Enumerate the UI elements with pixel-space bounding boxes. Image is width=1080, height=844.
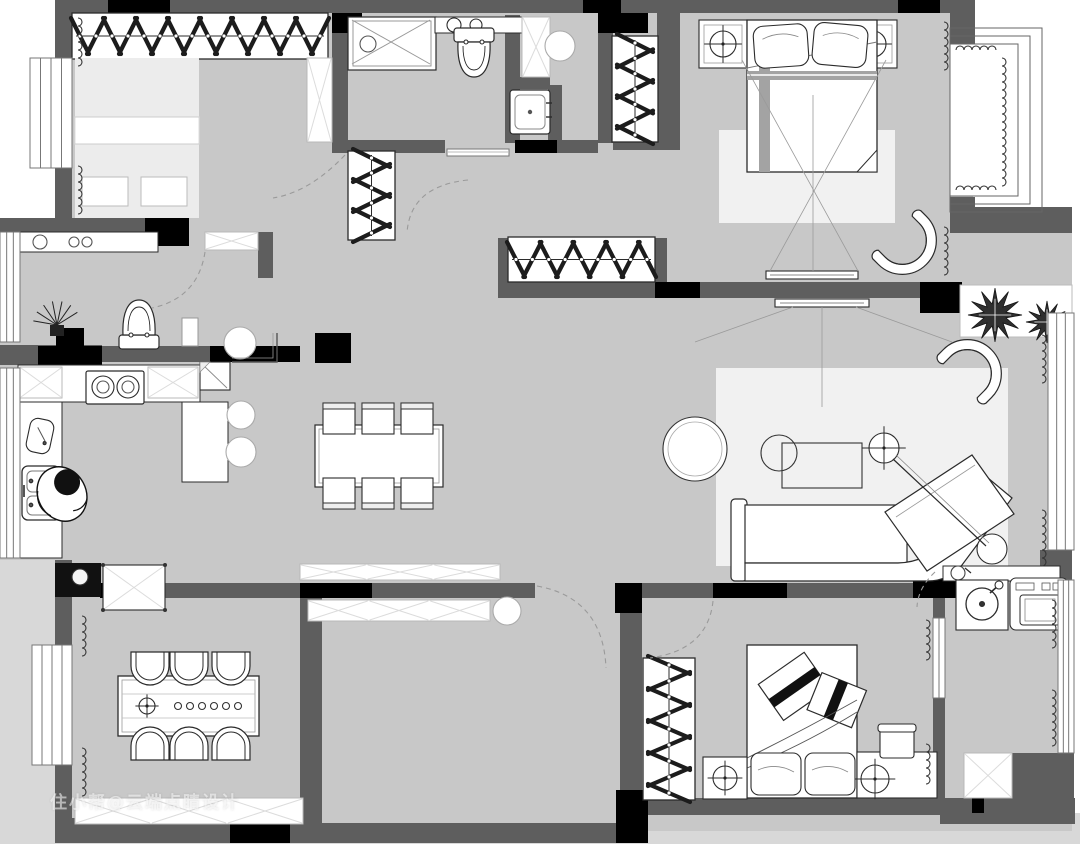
chair-back [362,403,394,409]
table-dot [223,703,230,710]
hook [633,118,636,121]
double-bed [747,20,877,172]
window-frame [0,368,20,558]
plant-pot [50,325,64,336]
window-frame [0,232,20,342]
pouf [224,327,256,359]
wall [372,583,535,598]
bracket [101,608,105,612]
sideboard [308,600,490,621]
hook [142,34,145,37]
chair-back [362,503,394,509]
wall-black [315,333,351,363]
wall [55,0,975,13]
pillow-shape [753,23,810,69]
bracket [163,563,167,567]
hook [547,258,550,261]
knife-dot [43,441,47,445]
dining-chair [212,652,250,685]
pillow-shape [751,753,801,795]
wall-black [613,13,648,33]
hook [126,34,129,37]
hook [596,258,599,261]
hook [370,216,373,219]
storage-cabinet [964,753,1012,798]
nightstand-left [699,20,747,68]
bed [747,645,866,798]
hook [370,201,373,204]
wall-black [713,583,787,598]
wall [0,218,147,232]
pillow [751,753,801,795]
dining-chair [131,652,169,685]
sideboard-hatch [300,564,500,580]
square-chair [401,478,433,509]
chair-back [323,403,355,409]
wall [657,13,680,143]
bracket [163,608,167,612]
wardrobe-hangers [348,149,395,242]
gas-stove [86,371,144,404]
wall [620,613,642,798]
hook [514,258,517,261]
window [0,368,20,558]
hinge [145,333,149,337]
hook [158,34,161,37]
wall [300,598,322,830]
wall-black [898,0,940,13]
window [32,645,72,765]
wall-black [583,0,621,13]
control-panel [1016,583,1034,590]
wall [642,583,713,598]
lamp-dot [721,42,724,45]
pillow [753,23,810,69]
wall [787,583,913,598]
sofa-seat [745,505,907,563]
hook [286,34,289,37]
floorplan-page: 住小帮@云端点睛设计 [0,0,1080,844]
square-chair [323,403,355,434]
wall-black [300,583,372,598]
wardrobe-hangers [643,656,695,802]
shower [348,17,436,70]
hook [667,743,670,746]
drain [29,503,33,507]
cabinet [101,563,167,612]
hook [667,711,670,714]
chair-back [401,403,433,409]
upper-cabinet [20,367,62,398]
hook [206,34,209,37]
hook [370,171,373,174]
toilet-tank [454,28,494,42]
wardrobe-hangers [507,237,656,282]
shoe-cabinet [205,232,258,250]
washbasin [510,90,552,134]
table-dot [211,703,218,710]
shelf [182,318,198,346]
wall-black [615,583,642,613]
stool [545,31,575,61]
nightstand [703,757,747,799]
table-dot [175,703,182,710]
lamp-dot [723,776,726,779]
hook [370,186,373,189]
wall [940,798,1075,824]
control-button [1042,583,1050,590]
storage-cabinet [307,58,332,142]
wall-black [515,140,557,153]
window [1048,313,1074,550]
wall [950,207,1072,233]
hinge [480,40,484,44]
hook [564,258,567,261]
hook [370,231,373,234]
pillow-shape [805,753,855,795]
chair-back [323,503,355,509]
lamp-dot [873,777,876,780]
window [30,58,72,168]
burner-inner [122,381,134,393]
toilet-tank [119,335,159,349]
decor-bowl [82,237,92,247]
desk [855,752,937,799]
hook [238,34,241,37]
wall [55,13,72,60]
hinge [464,40,468,44]
hinge [129,333,133,337]
shower-drain [360,36,376,52]
wall [933,598,945,620]
window-frame [1048,313,1074,550]
dining-chair [212,727,250,760]
bar-sink [72,569,88,585]
pillow [805,753,855,795]
wall [950,13,975,45]
wardrobe-hangers [71,13,329,59]
fridge [200,362,230,390]
hook [633,57,636,60]
washing-machine [956,580,1008,630]
wall-black [108,0,170,13]
hook [667,663,670,666]
window [1058,580,1074,753]
window [0,232,20,342]
sideboard-hatch [75,798,303,824]
hook [318,34,321,37]
hook [254,34,257,37]
dining-chair [170,652,208,685]
hook [667,679,670,682]
wall [1012,753,1074,798]
pillow-shape [811,22,868,69]
table-dot [199,703,206,710]
hook [633,87,636,90]
table-dot [187,703,194,710]
decor-bowl [33,235,47,249]
wall [498,282,660,298]
table-dot [235,703,242,710]
square-chair [362,403,394,434]
dining-chair [131,727,169,760]
drain [29,479,33,483]
peninsula [182,402,228,482]
window-frame [1058,580,1074,753]
square-chair [323,478,355,509]
hook [531,258,534,261]
hook [633,41,636,44]
hook [580,258,583,261]
bed-band [75,117,199,144]
window [933,618,945,698]
bay-glass [950,44,1018,196]
bracket [101,563,105,567]
cushion [141,177,187,206]
washer-knob [995,581,1003,589]
square-chair [362,478,394,509]
lamp-base [977,534,1007,564]
dining-chair [170,727,208,760]
hook [667,727,670,730]
lamp-dot [882,446,885,449]
hook [667,775,670,778]
chair-back [401,503,433,509]
hook [302,34,305,37]
wall [660,282,950,298]
hook [633,72,636,75]
hook [629,258,632,261]
hook [645,258,648,261]
hook [174,34,177,37]
burner-inner [97,381,109,393]
round-side-table [663,417,727,481]
hook [110,34,113,37]
decor-bowl [69,237,79,247]
washer-dot [980,602,985,607]
cushion [82,177,128,206]
wall-black [655,282,700,298]
round-stool [493,597,521,625]
square-chair [401,403,433,434]
bar-stool [227,401,255,429]
hook [370,156,373,159]
hook [667,759,670,762]
hook [190,34,193,37]
hook [613,258,616,261]
hook [222,34,225,37]
bar-stool [226,437,256,467]
wall [258,232,273,278]
wall-black [38,346,102,366]
hook [633,133,636,136]
chair-back [878,724,916,732]
wardrobe-hangers [612,34,658,144]
drain [528,110,532,114]
laundry-sink [951,566,965,580]
floorplan-drawing [0,0,1080,844]
hook [667,695,670,698]
dryer-door [1020,595,1060,625]
wall [320,823,642,843]
hook [667,791,670,794]
upper-cabinet [148,367,198,398]
hook [270,34,273,37]
hook [633,103,636,106]
hook [94,34,97,37]
lamp-dot [145,704,148,707]
desk-chair [878,724,916,758]
pillow [811,22,868,69]
